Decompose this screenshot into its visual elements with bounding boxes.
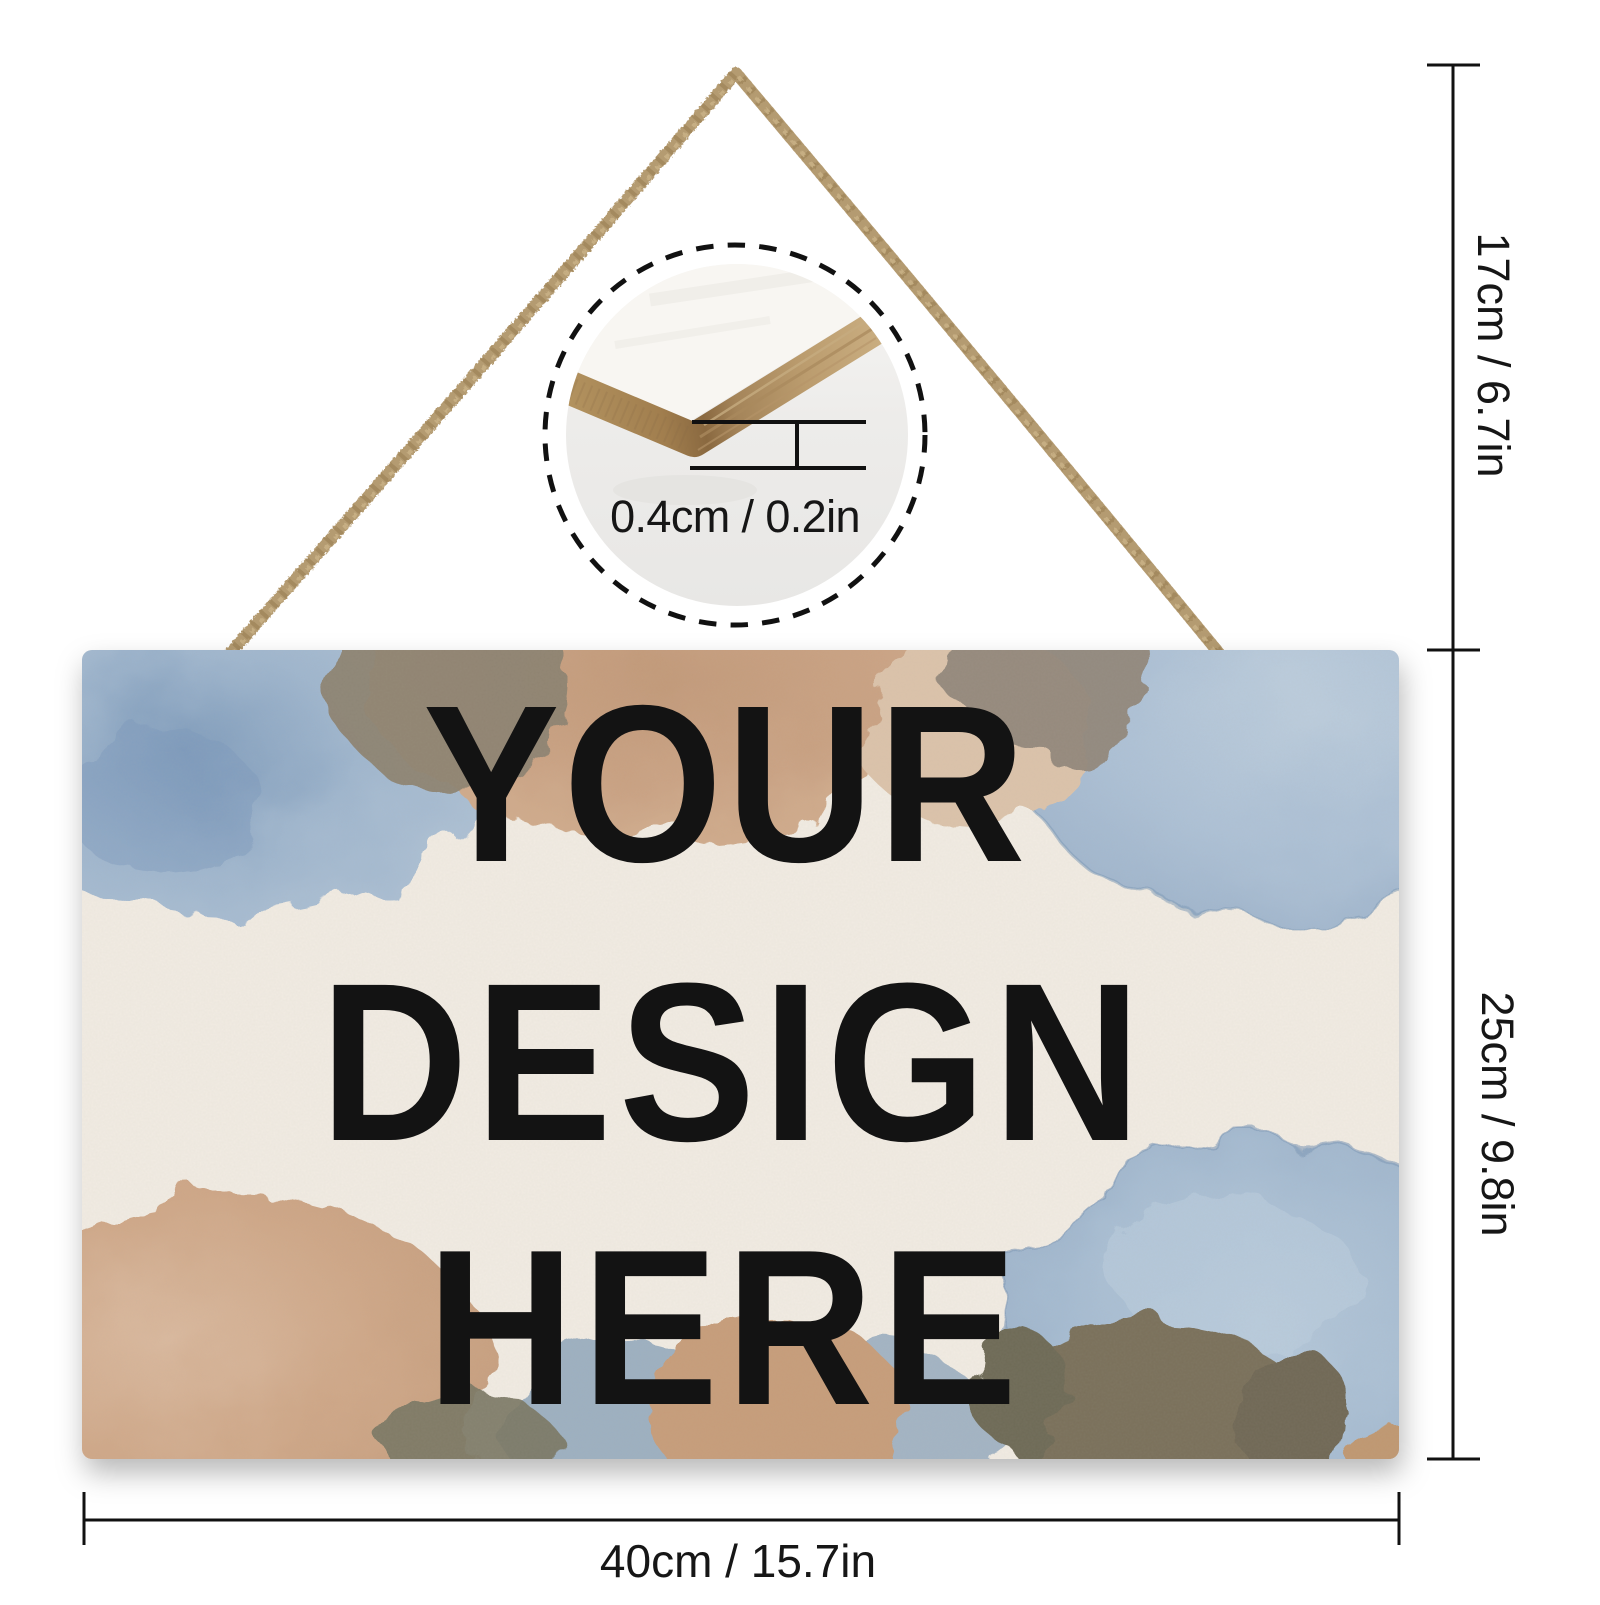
svg-text:DESIGN: DESIGN (320, 936, 1148, 1188)
svg-text:40cm / 15.7in: 40cm / 15.7in (600, 1535, 876, 1587)
svg-text:17cm / 6.7in: 17cm / 6.7in (1468, 232, 1519, 477)
svg-text:25cm / 9.8in: 25cm / 9.8in (1472, 991, 1523, 1236)
svg-text:HERE: HERE (427, 1205, 1025, 1452)
svg-text:0.4cm / 0.2in: 0.4cm / 0.2in (610, 491, 860, 542)
svg-text:YOUR: YOUR (423, 660, 1029, 909)
